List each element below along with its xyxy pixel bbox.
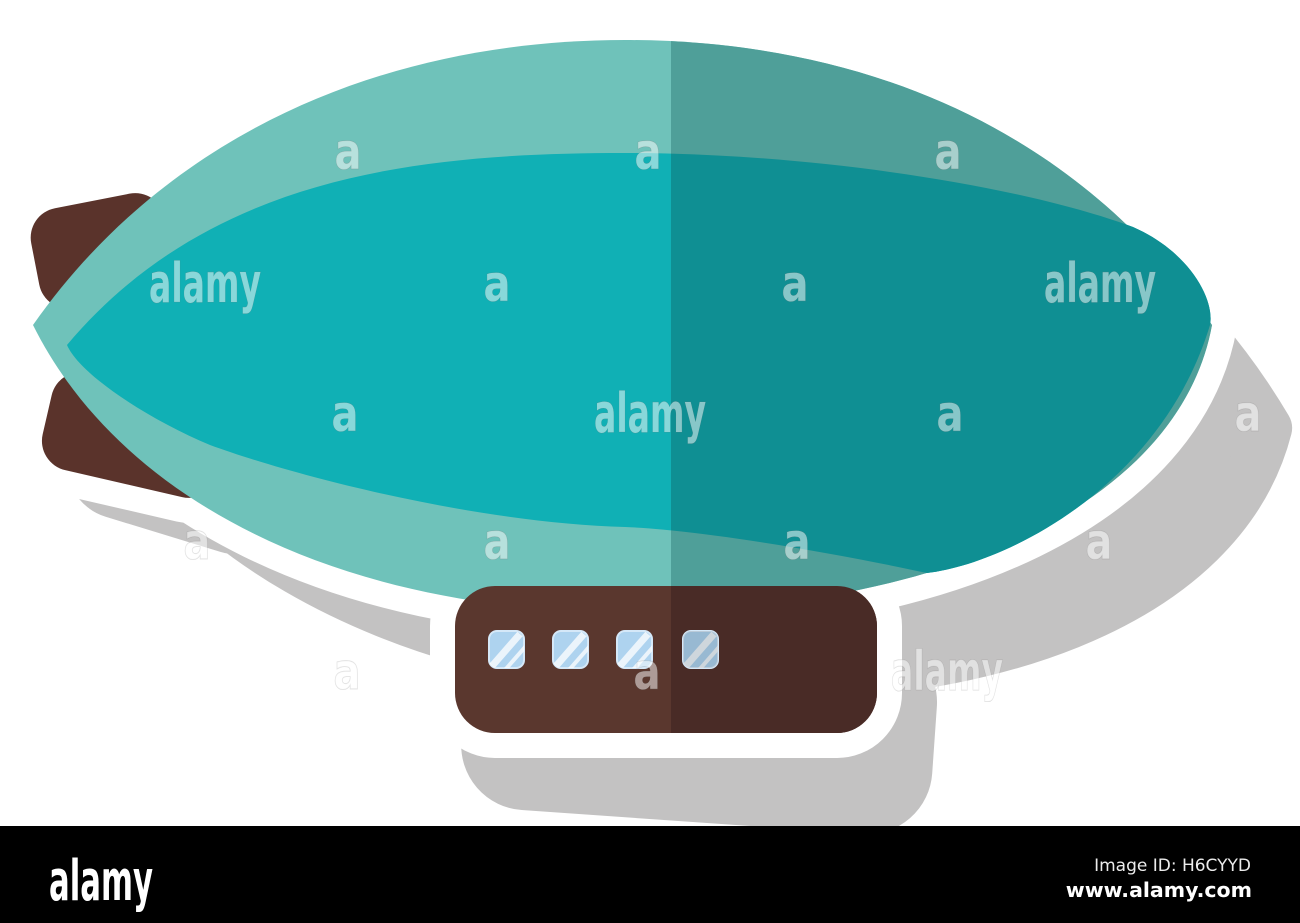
watermark-word: alamy [1044, 252, 1156, 315]
watermark-letter: a [635, 123, 662, 181]
watermark-letter: a [334, 643, 361, 701]
website-label: www.alamy.com [1066, 878, 1252, 902]
watermark-letter: a [1235, 385, 1262, 443]
footer-bar: alamy Image ID: H6CYYD www.alamy.com [0, 826, 1300, 923]
watermark-letter: a [484, 513, 511, 571]
watermark-letter: a [935, 123, 962, 181]
cabin-window-2 [553, 631, 590, 670]
watermark-letter: a [335, 123, 362, 181]
watermark-letter: a [484, 255, 511, 313]
stock-image-page: a a a alamy a a alamy a alamy a a a a a … [0, 0, 1300, 923]
image-id-label: Image ID: H6CYYD [1094, 856, 1251, 876]
watermark-word: alamy [149, 252, 261, 315]
watermark-word: alamy [594, 382, 706, 445]
watermark-letter: a [332, 385, 359, 443]
watermark-word: alamy [891, 640, 1003, 703]
watermark-letter: a [782, 255, 809, 313]
watermark-letter: a [784, 513, 811, 571]
airship-sticker-illustration: a a a alamy a a alamy a alamy a a a a a … [0, 0, 1300, 923]
cabin-window-1 [489, 631, 526, 670]
watermark-letter: a [184, 513, 211, 571]
cabin-window-4-shade [683, 631, 718, 668]
watermark-letter: a [937, 385, 964, 443]
watermark-letter: a [634, 643, 661, 701]
watermark-letter: a [1086, 513, 1113, 571]
alamy-logo: alamy [49, 849, 153, 914]
